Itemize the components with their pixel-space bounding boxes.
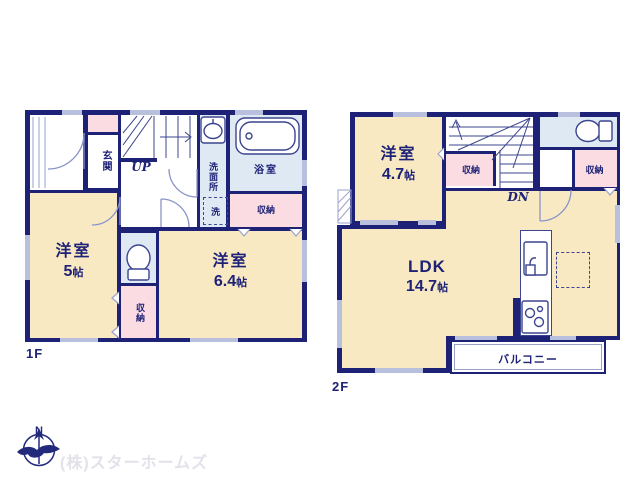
balcony: バルコニー	[450, 340, 606, 374]
side-closet-label: 収納	[572, 163, 617, 176]
stairs-up-label: UP	[121, 160, 161, 174]
window-marker	[418, 220, 436, 225]
window-marker	[615, 205, 620, 243]
genkan-label: 玄関	[95, 140, 113, 182]
balcony-label: バルコニー	[452, 351, 604, 367]
bedroom5-label: 洋室 5帖	[30, 242, 117, 282]
window-marker	[62, 110, 82, 115]
wall-stub-kitchen	[513, 298, 520, 338]
north-arrow-icon	[34, 428, 44, 440]
window-marker	[235, 110, 263, 115]
washroom-label: 洗面所	[204, 150, 220, 204]
floorplan-canvas: 洗 バルコニー	[0, 0, 640, 480]
window-marker	[375, 368, 423, 373]
bird-logo-icon	[17, 445, 60, 458]
company-watermark: (株)スターホームズ	[60, 449, 300, 473]
stairs-down-label: DN	[498, 190, 538, 204]
room-toilet-1f	[121, 233, 156, 283]
window-marker	[302, 240, 307, 282]
toilet-closet-label: 収納	[130, 294, 147, 332]
stair-closet-label: 収納	[446, 163, 496, 176]
window-marker	[360, 220, 398, 225]
compass-icon: N	[17, 425, 60, 466]
room-porch	[30, 115, 83, 190]
window-marker	[130, 110, 160, 115]
floor1-label: 1F	[26, 346, 43, 361]
genkan-shoe-closet	[88, 115, 118, 132]
bath-closet-label: 収納	[230, 203, 302, 216]
window-marker	[393, 112, 427, 117]
window-marker	[60, 338, 98, 342]
window-marker	[190, 338, 238, 342]
refrigerator-outline-icon	[556, 252, 590, 288]
room-ldk-left	[342, 229, 446, 368]
window-marker	[558, 112, 580, 117]
ldk-label: LDK 14.7帖	[352, 256, 502, 297]
window-marker	[337, 300, 342, 348]
bedroom64-label: 洋室 6.4帖	[159, 252, 302, 292]
room-bathroom	[230, 115, 302, 191]
room-toilet-2f	[540, 117, 617, 147]
bath-door-marker	[302, 160, 307, 186]
bedroom47-label: 洋室 4.7帖	[355, 145, 442, 185]
compass-north-label: N	[35, 425, 43, 437]
floor2-label: 2F	[332, 379, 349, 394]
washer-label: 洗	[204, 205, 227, 218]
kitchen-counter	[520, 230, 552, 336]
bathroom-label: 浴室	[230, 161, 302, 176]
